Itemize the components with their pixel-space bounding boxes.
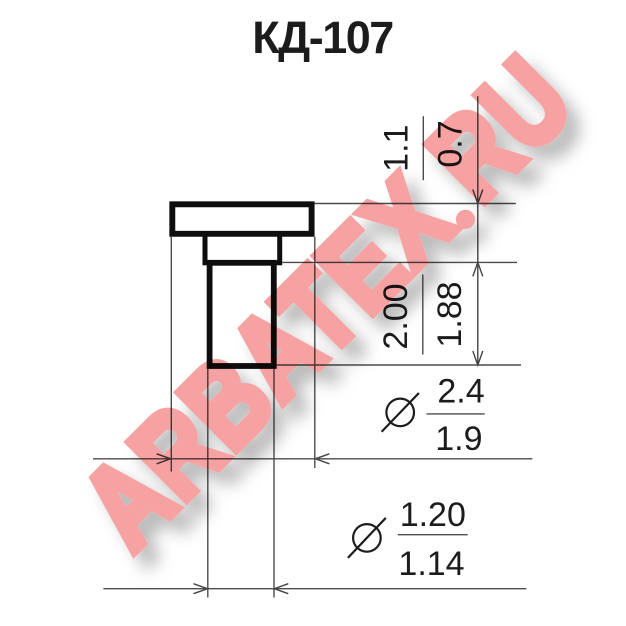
svg-text:1.1: 1.1 xyxy=(378,125,416,172)
svg-text:1.20: 1.20 xyxy=(400,496,466,534)
svg-text:1.14: 1.14 xyxy=(398,545,464,583)
svg-text:1.9: 1.9 xyxy=(435,420,482,458)
svg-text:0.7: 0.7 xyxy=(432,120,470,167)
svg-text:1.88: 1.88 xyxy=(431,281,469,347)
svg-text:2.4: 2.4 xyxy=(437,373,484,411)
svg-text:2.00: 2.00 xyxy=(377,283,415,349)
svg-text:КД-107: КД-107 xyxy=(252,12,393,63)
